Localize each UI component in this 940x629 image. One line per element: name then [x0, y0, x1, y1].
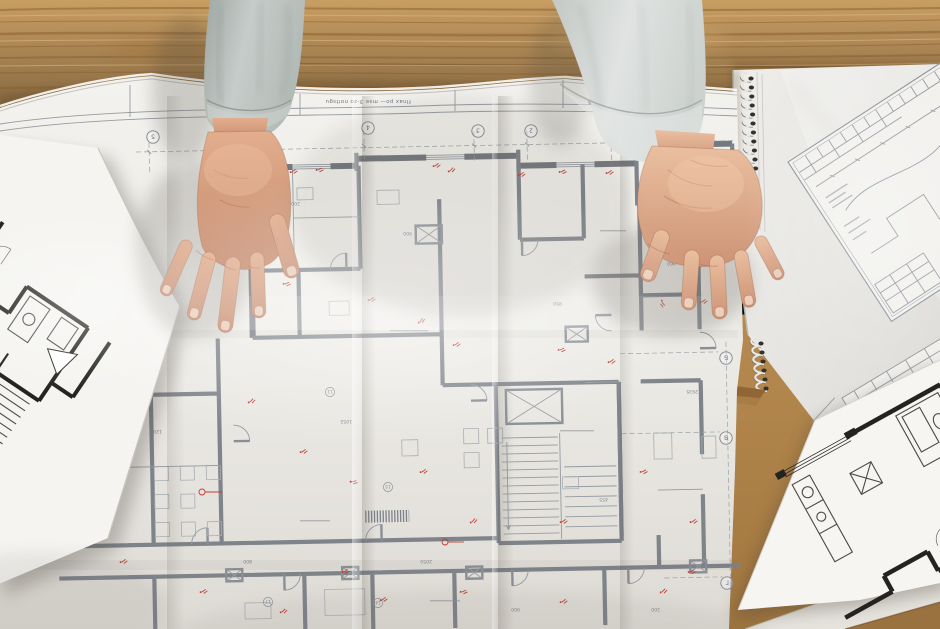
- grid-bubble: Б: [724, 354, 728, 361]
- dim-label: 200: [651, 606, 660, 612]
- photo-scene: fInax po— mse 3-zo noitsgu …ta Bulafsy ……: [0, 0, 940, 629]
- grid-bubble: В: [724, 434, 728, 441]
- room-tag: 15: [385, 483, 391, 489]
- dim-label: 2935: [686, 388, 698, 394]
- grid-bubble: 2: [529, 127, 533, 134]
- dim-label: 1052: [340, 418, 352, 424]
- room-tag: 11: [327, 388, 333, 394]
- room-tag: 17: [265, 598, 271, 604]
- dim-label: 900: [403, 230, 412, 236]
- grid-bubble: 5: [151, 133, 155, 140]
- scene-canvas: fInax po— mse 3-zo noitsgu …ta Bulafsy ……: [0, 0, 940, 629]
- dim-label: 200: [291, 200, 300, 206]
- dim-label: 455: [599, 496, 608, 502]
- grid-bubble: Г: [725, 579, 729, 586]
- grid-bubble: 3: [476, 127, 480, 134]
